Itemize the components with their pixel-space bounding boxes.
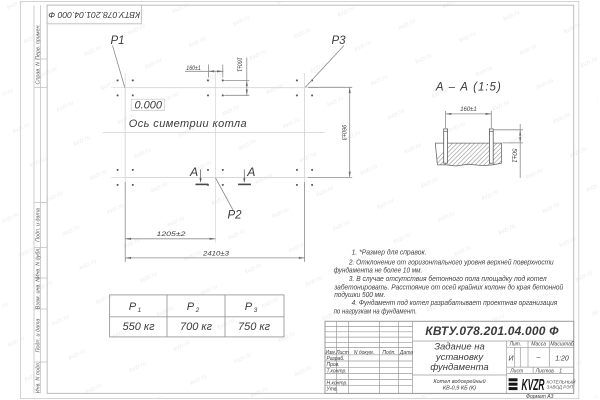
svg-text:P1: P1 bbox=[111, 35, 125, 47]
svg-text:Перв. примен.: Перв. примен. bbox=[36, 24, 42, 60]
svg-text:P3: P3 bbox=[332, 35, 347, 47]
svg-text:Лист: Лист bbox=[335, 350, 349, 356]
svg-text:1:20: 1:20 bbox=[555, 356, 569, 363]
svg-text:Дата: Дата bbox=[399, 350, 413, 356]
svg-text:Масштаб: Масштаб bbox=[550, 342, 574, 348]
svg-text:КОТЕЛЬНЫЙ: КОТЕЛЬНЫЙ bbox=[547, 377, 577, 384]
svg-text:Взам. инв. N: Взам. инв. N bbox=[36, 278, 42, 310]
svg-text:КВ-0,9 КБ (К): КВ-0,9 КБ (К) bbox=[443, 386, 476, 392]
svg-text:Лит.: Лит. bbox=[508, 342, 521, 348]
svg-text:160±1: 160±1 bbox=[186, 65, 201, 72]
svg-text:Пров.: Пров. bbox=[327, 362, 340, 368]
svg-text:P2: P2 bbox=[228, 210, 243, 222]
svg-text:1205±2: 1205±2 bbox=[157, 231, 186, 238]
svg-text:Подп.: Подп. bbox=[382, 350, 395, 356]
svg-text:Листов: Листов bbox=[535, 369, 555, 375]
svg-text:фундамента: фундамента bbox=[430, 362, 488, 373]
svg-text:Подп. и дата: Подп. и дата bbox=[36, 208, 42, 242]
svg-text:KVZR: KVZR bbox=[522, 377, 545, 394]
svg-text:Т.контр.: Т.контр. bbox=[327, 368, 347, 374]
svg-text:160±1: 160±1 bbox=[235, 57, 242, 72]
svg-text:КВТУ.078.201.04.000 Ф: КВТУ.078.201.04.000 Ф bbox=[425, 324, 559, 338]
svg-text:А: А bbox=[246, 165, 255, 179]
svg-text:ЗАВОД РЭП: ЗАВОД РЭП bbox=[547, 385, 574, 390]
svg-text:Изм.: Изм. bbox=[325, 350, 336, 356]
svg-text:Котел водогрейный: Котел водогрейный bbox=[433, 378, 485, 385]
svg-text:А: А bbox=[189, 165, 198, 179]
svg-text:А – А (1:5): А – А (1:5) bbox=[435, 81, 502, 93]
svg-text:Формат А3: Формат А3 bbox=[526, 394, 554, 400]
svg-text:700 кг: 700 кг bbox=[180, 321, 213, 333]
svg-text:960±3: 960±3 bbox=[340, 125, 347, 141]
svg-text:Масса: Масса bbox=[531, 342, 546, 348]
svg-text:1. *Размер для справок.: 1. *Размер для справок. bbox=[352, 248, 427, 257]
svg-text:N докум.: N докум. bbox=[354, 350, 374, 356]
svg-text:2410±3: 2410±3 bbox=[202, 251, 229, 258]
svg-text:Ось симетрии котла: Ось симетрии котла bbox=[129, 118, 247, 130]
svg-text:по нагрузкам на фундамент.: по нагрузкам на фундамент. bbox=[334, 307, 417, 316]
svg-text:КВТУ.078.201.04.000 Ф: КВТУ.078.201.04.000 Ф bbox=[48, 10, 140, 20]
svg-text:160±1: 160±1 bbox=[460, 106, 477, 113]
svg-text:50±1: 50±1 bbox=[510, 148, 517, 163]
svg-text:Подп. и дата: Подп. и дата bbox=[36, 319, 42, 353]
svg-text:750 кг: 750 кг bbox=[238, 321, 271, 333]
svg-text:Лист: Лист bbox=[509, 369, 523, 375]
svg-text:Утв.: Утв. bbox=[327, 387, 338, 393]
svg-text:Н.контр.: Н.контр. bbox=[327, 381, 348, 387]
svg-text:550 кг: 550 кг bbox=[122, 321, 155, 333]
svg-text:Разраб.: Разраб. bbox=[327, 356, 345, 362]
svg-text:0.000: 0.000 bbox=[135, 100, 163, 112]
svg-text:1: 1 bbox=[559, 369, 562, 375]
svg-text:Инв. N подл.: Инв. N подл. bbox=[36, 362, 42, 394]
svg-text:Инв. N дубл.: Инв. N дубл. bbox=[36, 247, 42, 278]
svg-text:Задание на: Задание на bbox=[434, 342, 485, 353]
svg-text:–: – bbox=[536, 355, 541, 362]
svg-text:Справ. N: Справ. N bbox=[36, 62, 42, 85]
